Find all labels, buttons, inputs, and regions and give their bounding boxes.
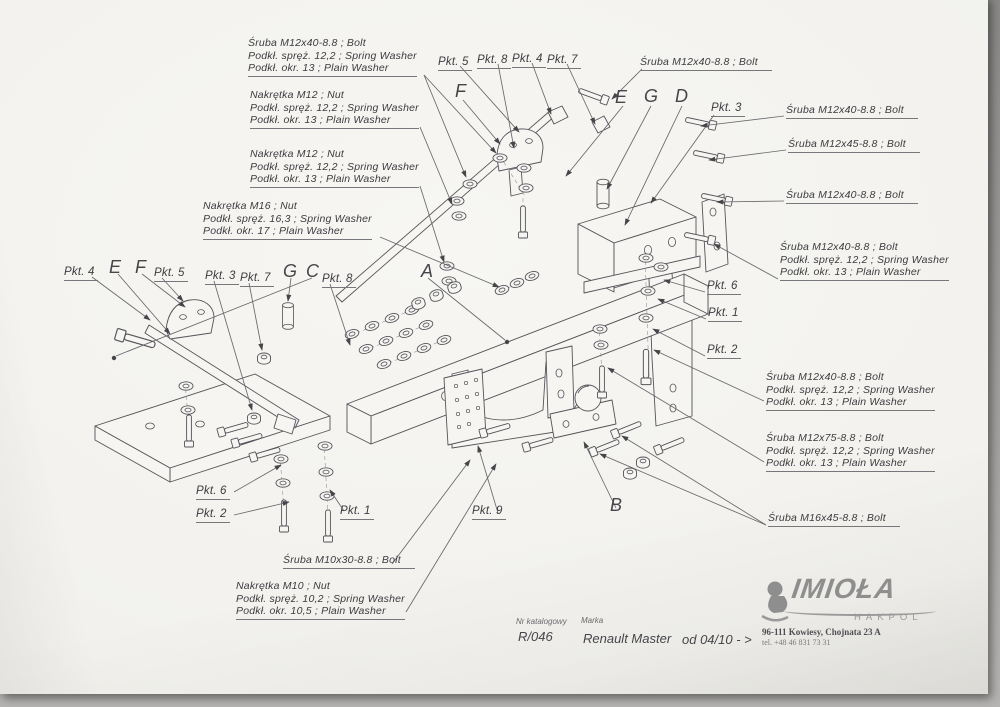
pkt-2-bottom: Pkt. 2 <box>196 508 230 523</box>
callout-bolt-m12x45-right-line: Śruba M12x45-8.8 ; Bolt <box>788 138 920 153</box>
marker-a-line: A <box>421 262 433 281</box>
marker-e-left-line: E <box>109 258 121 277</box>
pkt-9-line: Pkt. 9 <box>472 505 506 520</box>
callout-bolt-m12x75-washers-line: Podkł. okr. 13 ; Plain Washer <box>766 457 935 472</box>
pkt-3-left: Pkt. 3 <box>205 270 239 285</box>
callout-bolt-m12x40-washers-top-left-line: Śruba M12x40-8.8 ; Bolt <box>248 37 417 50</box>
callout-bolt-m16x45-line: Śruba M16x45-8.8 ; Bolt <box>768 512 900 527</box>
pkt-5-top-line: Pkt. 5 <box>438 56 472 71</box>
applicability-date-range: od 04/10 - > <box>682 632 752 647</box>
pkt-7-left-line: Pkt. 7 <box>240 272 274 287</box>
callout-bolt-m12x40-top-right-line: Śruba M12x40-8.8 ; Bolt <box>640 56 772 71</box>
marker-g-top: G <box>644 87 658 106</box>
callout-nut-m10-washers-line: Podkł. spręż. 10,2 ; Spring Washer <box>236 593 405 606</box>
marker-g-left: G <box>283 262 297 281</box>
spacer-tube-g-right <box>597 179 609 209</box>
pkt-5-top: Pkt. 5 <box>438 56 472 71</box>
marker-c-left: C <box>306 262 319 281</box>
pkt-1-bottom: Pkt. 1 <box>340 505 374 520</box>
pkt-4-top-line: Pkt. 4 <box>512 53 546 68</box>
marker-g-left-line: G <box>283 262 297 281</box>
pkt-3-right-line: Pkt. 3 <box>711 102 745 117</box>
manufacturer-phone: tel. +48 46 831 73 31 <box>762 638 831 648</box>
callout-bolt-m12x40-right-1-line: Śruba M12x40-8.8 ; Bolt <box>786 104 918 119</box>
callout-bolt-m12x45-right: Śruba M12x45-8.8 ; Bolt <box>788 138 920 153</box>
scanned-instruction-sheet: Śruba M12x40-8.8 ; BoltPodkł. spręż. 12,… <box>0 0 1000 707</box>
callout-bolt-m12x40-washers-bottom-right: Śruba M12x40-8.8 ; BoltPodkł. spręż. 12,… <box>766 371 935 411</box>
marker-d-top: D <box>675 87 688 106</box>
pkt-6-right: Pkt. 6 <box>707 280 741 295</box>
marker-e-top-line: E <box>615 88 627 107</box>
pkt-4-top: Pkt. 4 <box>512 53 546 68</box>
spacer-tube-g-left <box>283 303 294 330</box>
marker-f-top-line: F <box>455 82 466 101</box>
catalog-number-value: R/046 <box>518 629 553 644</box>
callout-bolt-m12x40-right-2-line: Śruba M12x40-8.8 ; Bolt <box>786 189 918 204</box>
marker-d-top-line: D <box>675 87 688 106</box>
marker-b: B <box>610 496 622 515</box>
marker-e-top: E <box>615 88 627 107</box>
marker-f-top: F <box>455 82 466 101</box>
callout-bolt-m12x40-washers-top-left-line: Podkł. spręż. 12,2 ; Spring Washer <box>248 50 417 63</box>
pkt-8-top-line: Pkt. 8 <box>477 54 511 69</box>
callout-bolt-m12x40-washers-right: Śruba M12x40-8.8 ; BoltPodkł. spręż. 12,… <box>780 241 949 281</box>
pkt-2-bottom-line: Pkt. 2 <box>196 508 230 523</box>
callout-nut-m12-washers-2-line: Nakrętka M12 ; Nut <box>250 148 419 161</box>
pkt-4-left: Pkt. 4 <box>64 266 98 281</box>
marker-c-left-line: C <box>306 262 319 281</box>
pkt-8-left: Pkt. 8 <box>322 273 356 288</box>
callout-nut-m12-washers-1-line: Nakrętka M12 ; Nut <box>250 89 419 102</box>
callout-nut-m12-washers-2-line: Podkł. spręż. 12,2 ; Spring Washer <box>250 161 419 174</box>
marker-g-top-line: G <box>644 87 658 106</box>
paper-sheet: Śruba M12x40-8.8 ; BoltPodkł. spręż. 12,… <box>0 0 988 694</box>
callout-nut-m12-washers-1: Nakrętka M12 ; NutPodkł. spręż. 12,2 ; S… <box>250 89 419 129</box>
marker-a: A <box>421 262 433 281</box>
marker-b-line: B <box>610 496 622 515</box>
pkt-7-left: Pkt. 7 <box>240 272 274 287</box>
strap-e-right <box>336 106 610 302</box>
callout-bolt-m10x30-line: Śruba M10x30-8.8 ; Bolt <box>283 554 415 569</box>
callout-nut-m16-washers-line: Podkł. spręż. 16,3 ; Spring Washer <box>203 213 372 226</box>
pkt-1-bottom-line: Pkt. 1 <box>340 505 374 520</box>
callout-nut-m12-washers-2: Nakrętka M12 ; NutPodkł. spręż. 12,2 ; S… <box>250 148 419 188</box>
logo-subbrand: HAKPOL <box>854 613 923 623</box>
callout-bolt-m12x40-washers-bottom-right-line: Śruba M12x40-8.8 ; Bolt <box>766 371 935 384</box>
pkt-3-left-line: Pkt. 3 <box>205 270 239 285</box>
callout-nut-m16-washers: Nakrętka M16 ; NutPodkł. spręż. 16,3 ; S… <box>203 200 372 240</box>
callout-nut-m10-washers-line: Podkł. okr. 10,5 ; Plain Washer <box>236 605 405 620</box>
callout-bolt-m10x30: Śruba M10x30-8.8 ; Bolt <box>283 554 415 569</box>
callout-nut-m12-washers-2-line: Podkł. okr. 13 ; Plain Washer <box>250 173 419 188</box>
callout-bolt-m12x40-washers-bottom-right-line: Podkł. okr. 13 ; Plain Washer <box>766 396 935 411</box>
vehicle-model: Renault Master <box>583 631 671 646</box>
pkt-1-right: Pkt. 1 <box>708 307 742 322</box>
pkt-8-top: Pkt. 8 <box>477 54 511 69</box>
pkt-8-left-line: Pkt. 8 <box>322 273 356 288</box>
callout-bolt-m12x40-washers-right-line: Podkł. okr. 13 ; Plain Washer <box>780 266 949 281</box>
towball-logo-icon <box>758 580 792 624</box>
callout-nut-m16-washers-line: Nakrętka M16 ; Nut <box>203 200 372 213</box>
callout-bolt-m12x75-washers-line: Śruba M12x75-8.8 ; Bolt <box>766 432 935 445</box>
manufacturer-address: 96-111 Kowiesy, Chojnata 23 A <box>762 627 881 638</box>
manufacturer-logo: IMIOŁA HAKPOL <box>758 580 944 624</box>
pkt-5-left-line: Pkt. 5 <box>154 267 188 282</box>
callout-nut-m12-washers-1-line: Podkł. spręż. 12,2 ; Spring Washer <box>250 102 419 115</box>
callout-nut-m10-washers: Nakrętka M10 ; NutPodkł. spręż. 10,2 ; S… <box>236 580 405 620</box>
marker-f-left: F <box>135 258 146 277</box>
pkt-7-top-line: Pkt. 7 <box>547 54 581 69</box>
callout-bolt-m16x45: Śruba M16x45-8.8 ; Bolt <box>768 512 900 527</box>
callout-bolt-m12x40-washers-top-left: Śruba M12x40-8.8 ; BoltPodkł. spręż. 12,… <box>248 37 417 77</box>
callout-bolt-m12x40-washers-bottom-right-line: Podkł. spręż. 12,2 ; Spring Washer <box>766 384 935 397</box>
pkt-7-top: Pkt. 7 <box>547 54 581 69</box>
callout-bolt-m12x40-right-2: Śruba M12x40-8.8 ; Bolt <box>786 189 918 204</box>
pkt-6-right-line: Pkt. 6 <box>707 280 741 295</box>
side-plate-right <box>702 194 728 272</box>
pkt-3-right: Pkt. 3 <box>711 102 745 117</box>
callout-bolt-m12x75-washers-line: Podkł. spręż. 12,2 ; Spring Washer <box>766 445 935 458</box>
pkt-9: Pkt. 9 <box>472 505 506 520</box>
pkt-4-left-line: Pkt. 4 <box>64 266 98 281</box>
callout-nut-m12-washers-1-line: Podkł. okr. 13 ; Plain Washer <box>250 114 419 129</box>
marker-f-left-line: F <box>135 258 146 277</box>
callout-bolt-m12x40-right-1: Śruba M12x40-8.8 ; Bolt <box>786 104 918 119</box>
pkt-6-bottom: Pkt. 6 <box>196 485 230 500</box>
callout-nut-m16-washers-line: Podkł. okr. 17 ; Plain Washer <box>203 225 372 240</box>
pkt-6-bottom-line: Pkt. 6 <box>196 485 230 500</box>
logo-wordmark: IMIOŁA <box>790 574 898 604</box>
callout-bolt-m12x40-washers-top-left-line: Podkł. okr. 13 ; Plain Washer <box>248 62 417 77</box>
marker-e-left: E <box>109 258 121 277</box>
pkt-1-right-line: Pkt. 1 <box>708 307 742 322</box>
callout-bolt-m12x40-top-right: Śruba M12x40-8.8 ; Bolt <box>640 56 772 71</box>
catalog-number-label: Nr katalogowy <box>516 617 567 626</box>
callout-bolt-m12x75-washers: Śruba M12x75-8.8 ; BoltPodkł. spręż. 12,… <box>766 432 935 472</box>
pkt-2-right-line: Pkt. 2 <box>707 344 741 359</box>
pkt-2-right: Pkt. 2 <box>707 344 741 359</box>
callout-bolt-m12x40-washers-right-line: Śruba M12x40-8.8 ; Bolt <box>780 241 949 254</box>
callout-bolt-m12x40-washers-right-line: Podkł. spręż. 12,2 ; Spring Washer <box>780 254 949 267</box>
callout-nut-m10-washers-line: Nakrętka M10 ; Nut <box>236 580 405 593</box>
pkt-5-left: Pkt. 5 <box>154 267 188 282</box>
brand-label: Marka <box>581 616 603 625</box>
